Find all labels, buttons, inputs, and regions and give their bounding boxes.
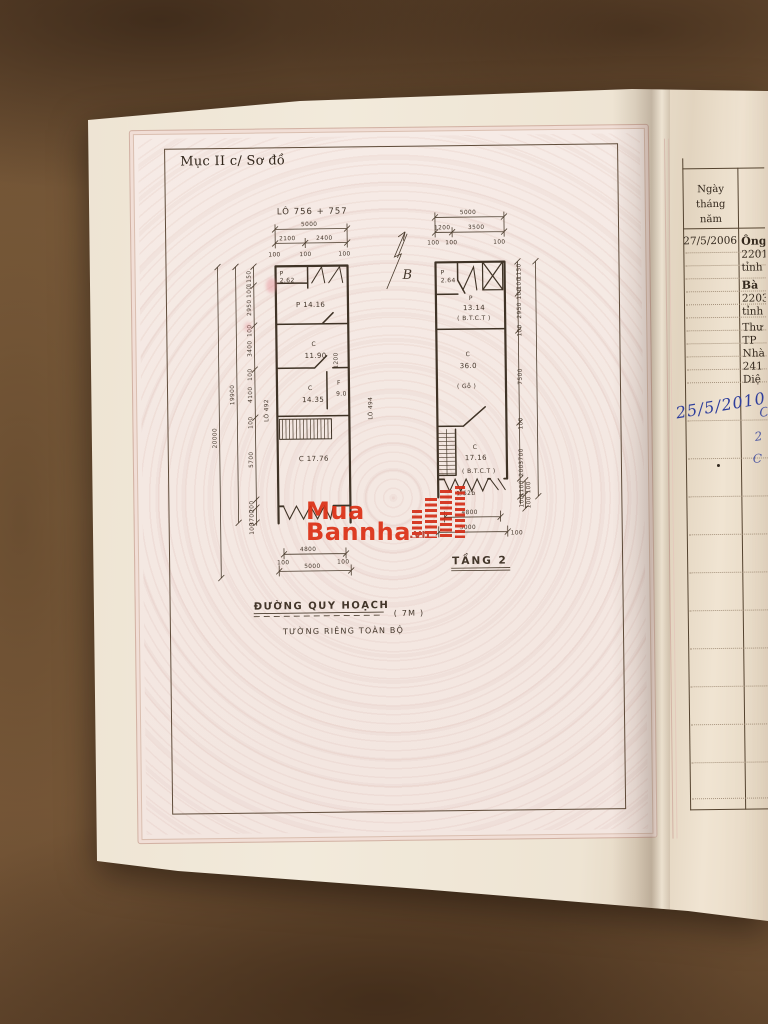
svg-text:100: 100 <box>268 252 280 258</box>
svg-text:( B.T.C.T ): ( B.T.C.T ) <box>462 468 496 475</box>
pink-smudge <box>244 322 252 332</box>
svg-text:1150: 1150 <box>247 270 253 286</box>
svg-text:100: 100 <box>517 324 523 336</box>
svg-text:ĐƯỜNG QUY HOẠCH: ĐƯỜNG QUY HOẠCH <box>254 598 390 613</box>
handwriting-fragment: C <box>753 451 762 465</box>
svg-text:( 7M ): ( 7M ) <box>394 609 425 618</box>
svg-text:1100: 1100 <box>519 480 525 496</box>
entry-text: 2203 <box>742 292 768 304</box>
svg-text:100: 100 <box>248 369 254 381</box>
svg-text:100: 100 <box>250 523 256 535</box>
north-label: B <box>402 268 413 283</box>
svg-text:4800: 4800 <box>300 547 316 553</box>
svg-text:C: C <box>308 385 313 392</box>
printed-date: 27/5/2006 <box>683 235 737 248</box>
street-labels: ĐƯỜNG QUY HOẠCH ( 7M ) TƯỜNG RIÊNG TOÀN … <box>254 598 425 637</box>
floor2-top-dimensions: 5000 1200 3500 100 100 100 <box>427 210 507 247</box>
dotted-ruling <box>689 571 768 573</box>
svg-text:1200: 1200 <box>334 352 340 368</box>
svg-text:2950: 2950 <box>247 299 253 315</box>
pink-smudge <box>266 278 277 293</box>
handwriting-fragment: 2 <box>754 429 764 444</box>
table-line <box>682 158 691 810</box>
svg-text:100: 100 <box>338 251 350 257</box>
svg-text:3500: 3500 <box>468 225 484 231</box>
dotted-ruling <box>692 761 768 763</box>
svg-text:3700: 3700 <box>519 448 525 464</box>
entry-text: Ông <box>741 234 766 247</box>
svg-text:100: 100 <box>526 496 532 508</box>
svg-text:19900: 19900 <box>230 385 236 406</box>
floor1-left-dimensions: 1150 100 2950 100 3400 100 4100 100 5700… <box>210 263 272 581</box>
ink-dot <box>717 464 720 467</box>
svg-text:5000: 5000 <box>301 222 317 228</box>
right-page-border <box>664 139 678 839</box>
north-arrow-icon: B <box>386 232 413 289</box>
svg-text:5700: 5700 <box>249 451 255 467</box>
svg-text:100: 100 <box>299 252 311 258</box>
svg-text:5000: 5000 <box>304 564 320 570</box>
svg-text:20000: 20000 <box>212 428 218 449</box>
svg-text:P: P <box>469 295 473 302</box>
svg-text:13.14: 13.14 <box>463 304 485 312</box>
svg-text:100: 100 <box>493 240 505 246</box>
dotted-ruling <box>689 533 768 535</box>
svg-text:( Gỗ ): ( Gỗ ) <box>457 383 476 390</box>
svg-text:C: C <box>473 444 478 451</box>
svg-text:100: 100 <box>277 560 289 566</box>
svg-text:2.62: 2.62 <box>280 277 295 284</box>
svg-text:C: C <box>311 341 316 348</box>
floor2-stair-hatch <box>438 429 457 475</box>
dotted-ruling <box>690 647 768 649</box>
svg-text:100: 100 <box>517 287 523 299</box>
svg-text:LÔ 492: LÔ 492 <box>263 399 270 422</box>
svg-text:7500: 7500 <box>518 368 524 384</box>
dotted-ruling <box>687 419 767 421</box>
entry-text: TP <box>742 335 756 347</box>
svg-text:P 14.16: P 14.16 <box>296 301 326 309</box>
svg-text:100: 100 <box>526 481 532 493</box>
svg-text:100: 100 <box>427 240 439 246</box>
entry-text: Bà <box>742 278 759 291</box>
svg-text:11.90: 11.90 <box>305 352 327 360</box>
dotted-ruling <box>691 685 768 687</box>
floor1-bottom-dimensions: 4800 100 100 5000 <box>276 546 354 576</box>
floor-plan-drawing: P 2.62 P 14.16 C 11.90 C 14.35 F 9.0 C 1… <box>164 143 624 812</box>
dotted-ruling <box>692 797 768 799</box>
table-line <box>683 227 765 229</box>
svg-text:3400: 3400 <box>247 340 253 356</box>
svg-text:17.16: 17.16 <box>465 454 487 462</box>
svg-text:14.35: 14.35 <box>302 396 324 404</box>
svg-text:LÔ 494: LÔ 494 <box>367 397 374 420</box>
svg-text:100: 100 <box>511 530 523 536</box>
svg-text:200: 200 <box>519 464 525 476</box>
handwriting-fragment: C <box>759 405 768 420</box>
svg-text:2400: 2400 <box>316 236 332 242</box>
svg-text:TƯỜNG RIÊNG TOÀN BỘ: TƯỜNG RIÊNG TOÀN BỘ <box>282 624 404 636</box>
svg-text:4100: 4100 <box>248 386 254 402</box>
svg-text:5000: 5000 <box>460 210 476 216</box>
svg-text:( B.T.C.T ): ( B.T.C.T ) <box>457 315 491 322</box>
svg-text:2.64: 2.64 <box>441 277 456 284</box>
svg-text:2100: 2100 <box>279 236 295 242</box>
floor1-top-dimensions: LÔ 756 + 757 5000 2100 2400 100 100 100 <box>268 204 351 258</box>
svg-text:LÔ 756 + 757: LÔ 756 + 757 <box>277 204 348 217</box>
dotted-ruling <box>690 609 768 611</box>
entry-text: 2201 <box>741 248 768 260</box>
svg-text:TẦNG 2: TẦNG 2 <box>452 553 508 568</box>
entry-text: tỉnh <box>742 305 763 317</box>
entry-text: Thư <box>742 321 763 333</box>
entry-text: Nhà <box>743 347 765 359</box>
svg-text:1200: 1200 <box>434 225 450 231</box>
svg-text:C 17.76: C 17.76 <box>299 455 329 463</box>
svg-text:100: 100 <box>337 560 349 566</box>
right-page: Ngày tháng năm 27/5/2006 Ông 2201 tỉnh B… <box>643 79 768 840</box>
dotted-ruling <box>688 495 768 497</box>
floor1-stair-hatch <box>282 419 328 440</box>
svg-text:100: 100 <box>247 286 253 298</box>
svg-text:P: P <box>280 270 284 277</box>
watermark-line2: Bannha <box>306 520 411 544</box>
svg-text:P: P <box>441 269 445 276</box>
entry-text: Diệ <box>743 373 761 385</box>
svg-text:2950: 2950 <box>517 302 523 318</box>
svg-text:1150: 1150 <box>516 263 522 279</box>
svg-text:C: C <box>466 351 471 358</box>
svg-text:100: 100 <box>518 417 524 429</box>
photo-canvas: Mục II c/ Sơ đồ <box>0 0 768 1024</box>
muabannha-watermark: Mua Bannha .vn <box>300 486 470 544</box>
dotted-ruling <box>691 723 768 725</box>
entry-text: tỉnh <box>741 261 762 273</box>
table-line <box>690 808 768 810</box>
handwritten-date: 25/5/2010 <box>674 388 767 422</box>
svg-text:F: F <box>337 380 341 387</box>
svg-text:100: 100 <box>445 240 457 246</box>
table-line <box>682 167 764 169</box>
floor2-room-labels: P 2.64 P 13.14 ( B.T.C.T ) C 36.0 ( Gỗ )… <box>441 269 496 498</box>
floor2-right-dimensions: 1150 100 100 2950 100 7500 100 3700 200 … <box>365 258 541 509</box>
svg-text:9.0: 9.0 <box>336 391 347 398</box>
entry-text: 241 <box>743 360 763 372</box>
svg-text:36.0: 36.0 <box>460 362 477 370</box>
svg-text:100: 100 <box>248 417 254 429</box>
date-column-header: Ngày tháng năm <box>684 182 739 228</box>
